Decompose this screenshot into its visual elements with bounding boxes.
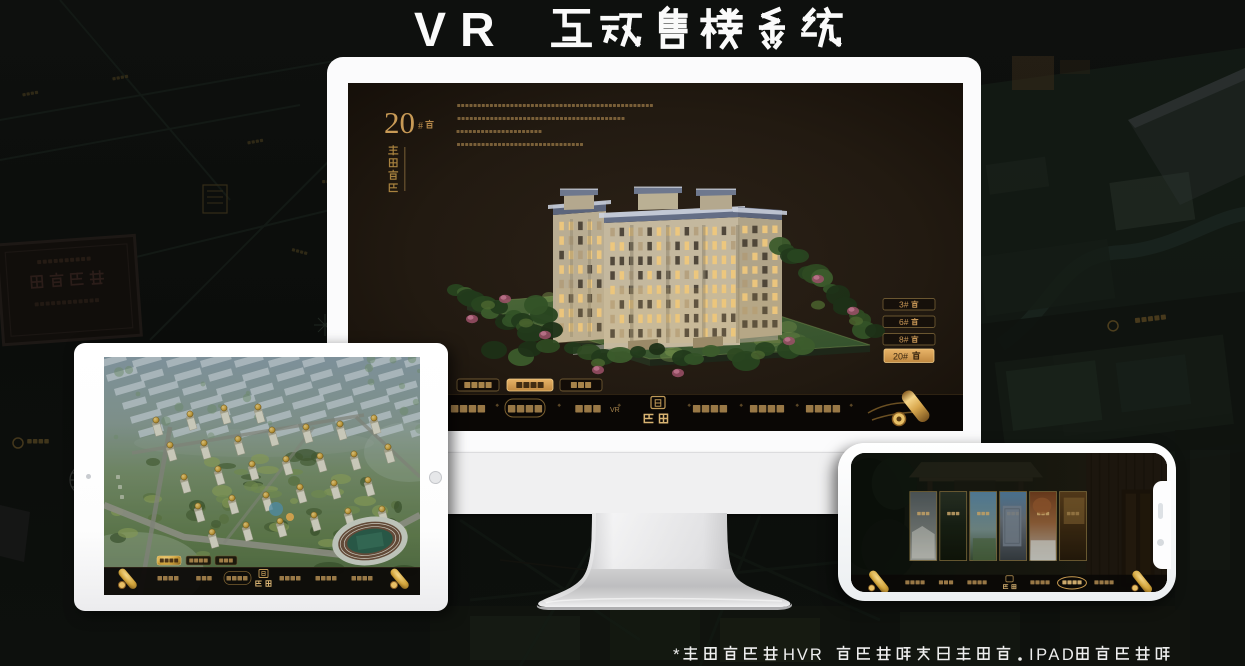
- svg-text:IPAD: IPAD: [1029, 646, 1076, 664]
- svg-text:20#: 20#: [893, 352, 908, 362]
- svg-text:HVR: HVR: [783, 646, 824, 664]
- svg-text:VR: VR: [414, 4, 509, 57]
- svg-text:8#: 8#: [899, 335, 909, 345]
- svg-text:VR: VR: [610, 407, 620, 414]
- svg-text:3#: 3#: [899, 300, 909, 310]
- svg-text:20: 20: [384, 105, 415, 140]
- svg-text:6#: 6#: [899, 317, 909, 327]
- svg-text:*: *: [673, 645, 680, 664]
- svg-text:#: #: [418, 121, 423, 132]
